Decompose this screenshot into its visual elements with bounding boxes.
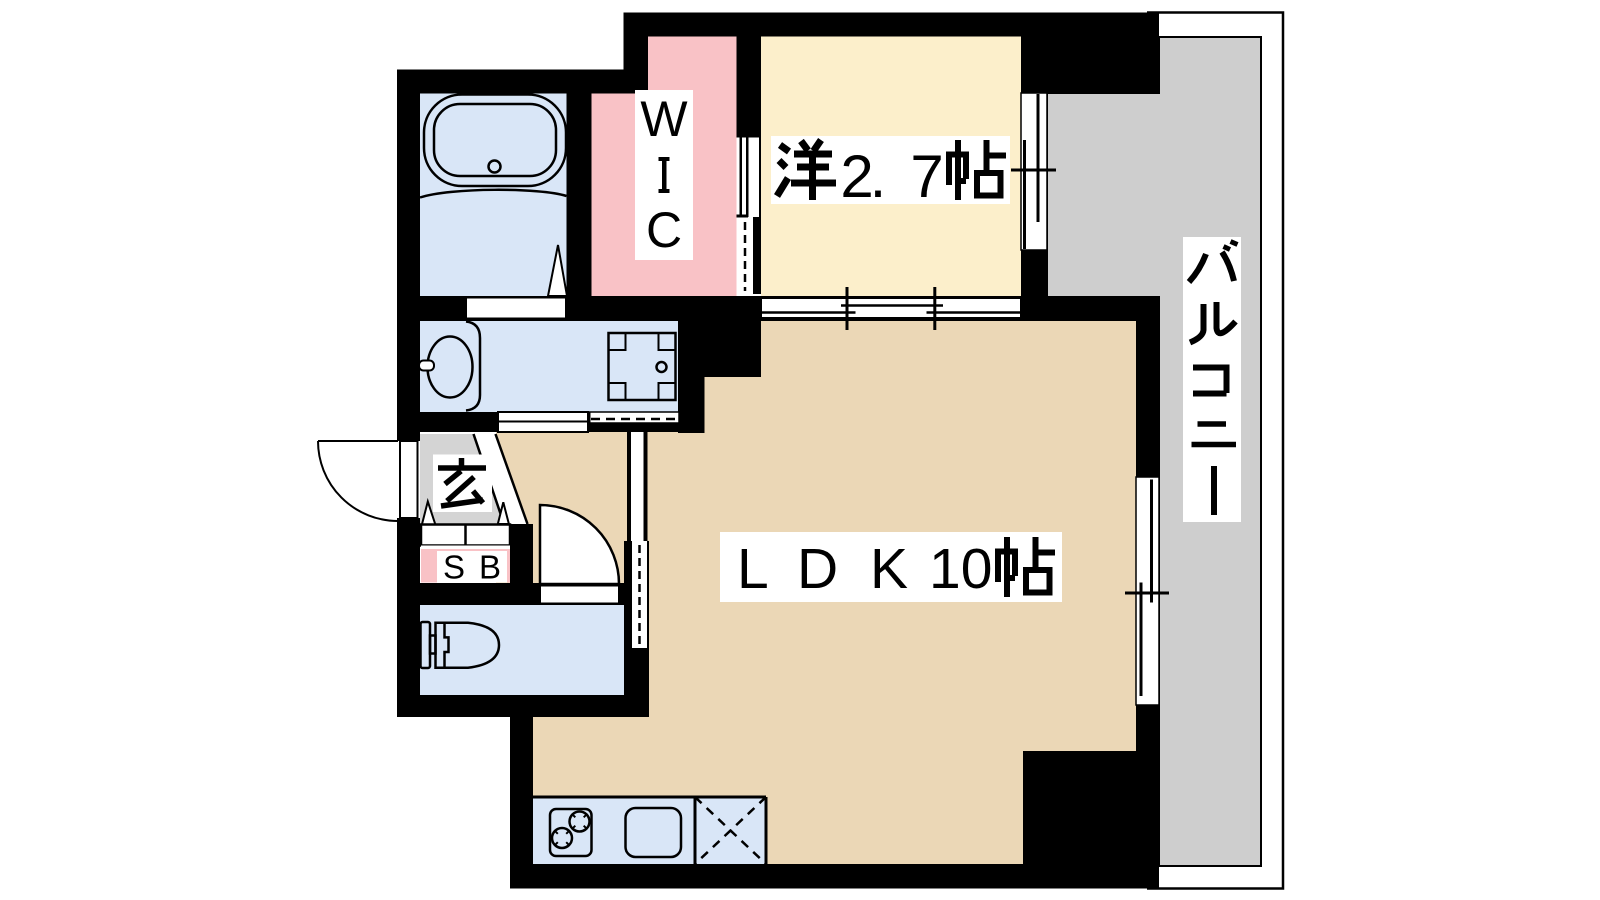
svg-text:7: 7: [910, 143, 943, 210]
svg-text:L: L: [737, 537, 769, 601]
svg-text:.: .: [870, 143, 887, 210]
svg-text:W: W: [640, 91, 688, 147]
svg-text:S: S: [443, 549, 465, 586]
svg-text:C: C: [646, 202, 682, 258]
svg-text:D: D: [797, 537, 838, 601]
svg-text:10: 10: [929, 537, 992, 601]
svg-text:B: B: [479, 549, 501, 586]
svg-text:K: K: [870, 537, 908, 601]
